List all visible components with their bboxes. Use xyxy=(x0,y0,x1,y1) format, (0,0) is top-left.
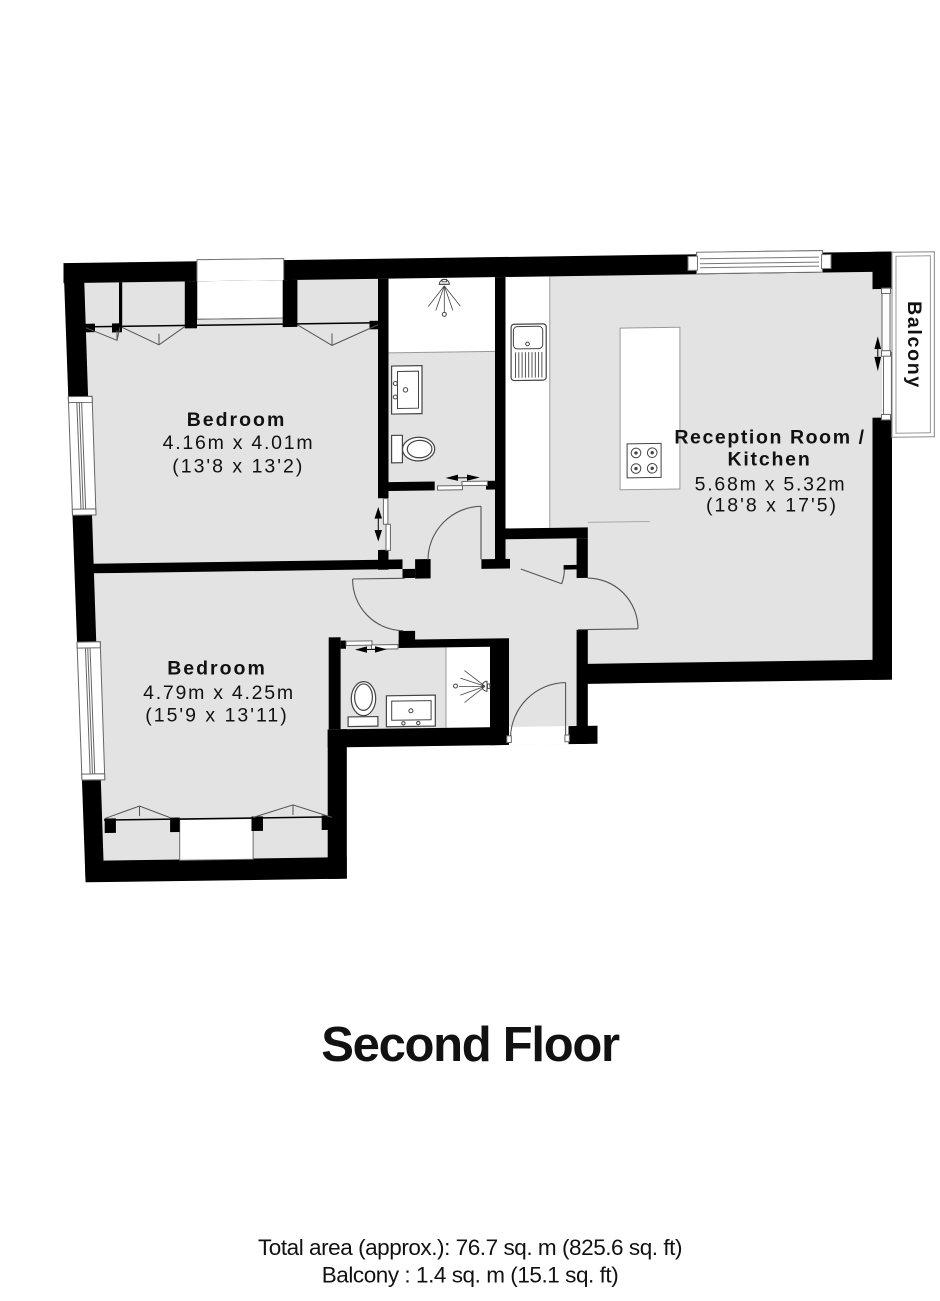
svg-text:Kitchen: Kitchen xyxy=(727,449,811,471)
svg-text:Reception Room /: Reception Room / xyxy=(674,427,865,449)
svg-text:Bedroom: Bedroom xyxy=(187,409,287,431)
svg-text:4.16m x 4.01m: 4.16m x 4.01m xyxy=(163,432,315,454)
svg-text:Balcony: Balcony xyxy=(903,301,925,389)
svg-text:Total area (approx.): 76.7 sq.: Total area (approx.): 76.7 sq. m (825.6 … xyxy=(258,1235,682,1260)
svg-text:Second Floor: Second Floor xyxy=(321,1018,620,1072)
svg-text:4.79m x 4.25m: 4.79m x 4.25m xyxy=(143,682,295,704)
svg-text:Balcony : 1.4 sq. m (15.1 sq.: Balcony : 1.4 sq. m (15.1 sq. ft) xyxy=(322,1263,619,1288)
svg-text:5.68m x 5.32m: 5.68m x 5.32m xyxy=(695,474,847,496)
svg-text:(13'8 x 13'2): (13'8 x 13'2) xyxy=(172,456,304,478)
svg-text:Bedroom: Bedroom xyxy=(167,658,267,680)
svg-text:(15'9 x 13'11): (15'9 x 13'11) xyxy=(145,705,289,727)
svg-text:(18'8 x 17'5): (18'8 x 17'5) xyxy=(706,495,838,517)
